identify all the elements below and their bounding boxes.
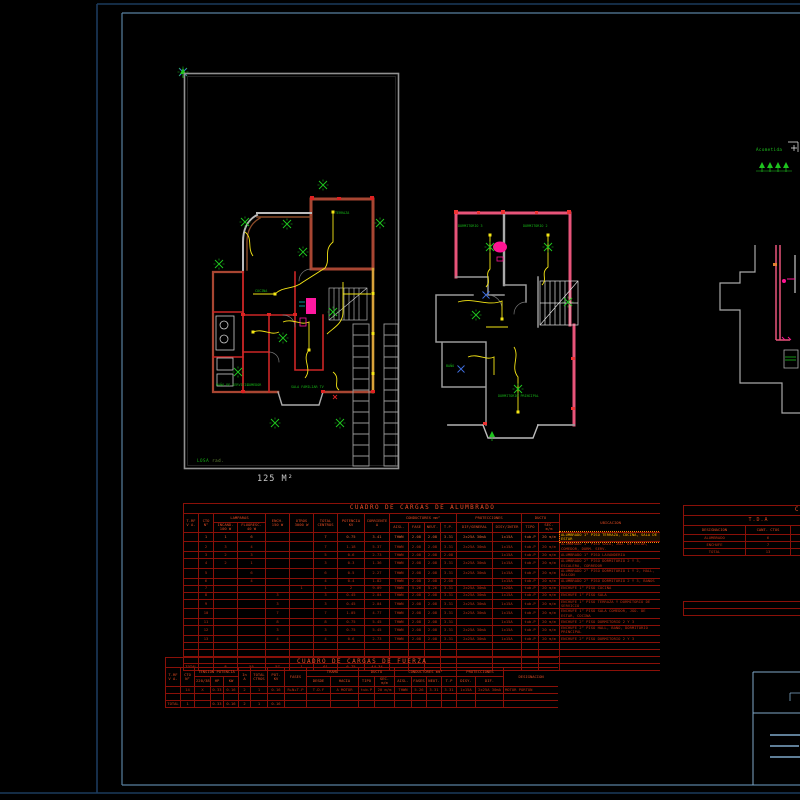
table-cell: [290, 635, 314, 642]
table-cell: [290, 559, 314, 569]
area-label: 125 M²: [257, 474, 294, 484]
table-cell: [290, 578, 314, 585]
table-cell: X: [195, 686, 211, 693]
table-cell: [290, 599, 314, 609]
table-cell: 6: [746, 535, 791, 542]
table-cell: [560, 656, 661, 663]
table-header-cell: T.RF V A.: [166, 668, 181, 687]
table-cell: ENCHUFE 1° PISO SALA: [560, 592, 661, 599]
table-cell: 1.36: [365, 559, 390, 569]
table-cell: [266, 578, 290, 585]
table-cell: 2.08: [409, 542, 425, 552]
table-cell: 5.26: [409, 585, 425, 592]
table-cell: [457, 642, 493, 649]
table-cell: 1x15A: [493, 626, 522, 636]
table-cell: 1: [199, 532, 214, 542]
table-cell: [504, 693, 559, 700]
table-cell: [395, 693, 412, 700]
table-cell: [560, 649, 661, 656]
table-header-cell: T.RF V A.: [184, 514, 199, 533]
table-header-cell: PROTECCIONES: [457, 514, 522, 523]
table-cell: 20 m/m: [539, 635, 560, 642]
header-row: CUADRO: [684, 506, 800, 516]
table-cell: tub.P: [522, 599, 539, 609]
table-cell: 13: [199, 635, 214, 642]
table-cell: 0.5: [338, 568, 365, 578]
table-cell: [290, 542, 314, 552]
table-cell: 1: [290, 585, 314, 592]
table-row: 6440.41.82THWN2.082.082.081x15Atub.P20 m…: [184, 578, 661, 585]
table-cell: 8: [314, 619, 338, 626]
table-header-cell: DUCTO: [522, 514, 560, 523]
room-label-bano-servicio: BAÑO DE SERVICIO: [216, 382, 249, 387]
table-cell: 2x25A 30mA: [457, 635, 493, 642]
table-cell: MOTOR PORTON: [504, 686, 559, 693]
table-cell: 0.16: [268, 686, 285, 693]
table-cell: 1x15A: [493, 592, 522, 599]
room-label-bano: BAÑO: [446, 363, 454, 368]
table-row: 10771.054.77THWN2.082.083.312x25A 30mA1x…: [184, 609, 661, 619]
table-cell: 2x25A 30mA: [476, 686, 504, 693]
table-header-cell: KW: [224, 677, 239, 687]
table-cell: [238, 585, 266, 592]
header-row: T.D.A: [684, 516, 800, 526]
table-row: 32350.62.73THWN2.082.082.081x15Atub.P20 …: [184, 552, 661, 559]
table-cell: 0.16: [224, 686, 239, 693]
table-cell: [457, 619, 493, 626]
table-cell: [266, 649, 290, 656]
table-cell: [195, 700, 211, 707]
table-cell: THWN: [390, 578, 409, 585]
table-cell: [425, 642, 441, 649]
table-cell: ENCHUFE 2° PISO HALL, BAÑO, DORMITORIO P…: [560, 626, 661, 636]
table-cell: THWN: [390, 532, 409, 542]
table-cell: 2.73: [365, 552, 390, 559]
table-cell: 2.08: [409, 592, 425, 599]
table-cell: 3: [314, 592, 338, 599]
table-header-cell: NEUT.: [427, 677, 442, 687]
room-label-dorm2: DORMITORIO 2: [523, 224, 548, 228]
table-row: 11880.755.45THWN2.082.083.311x15Atub.P20…: [184, 619, 661, 626]
cad-drawing-canvas: TERRAZA COCINA BAÑO DE SERVICIO COMEDOR …: [0, 0, 800, 800]
table-cell: [211, 693, 224, 700]
table-header-cell: DISY/INTER: [493, 523, 522, 533]
table-header-cell: SEC. m/m: [375, 677, 395, 687]
table-cell: [290, 532, 314, 542]
table-row: 12330.755.45THWN2.082.083.312x25A 30mA1x…: [184, 626, 661, 636]
table-cell: 20 m/m: [539, 619, 560, 626]
table-header-cell: CUADRO DE CARGAS DE FUERZA: [166, 658, 559, 668]
table-cell: [395, 700, 412, 707]
table-cell: [214, 635, 238, 642]
losa-note: LOSA rad.: [197, 458, 224, 463]
table-cell: [539, 649, 560, 656]
table-cell: 1: [238, 559, 266, 569]
table: [683, 601, 800, 616]
table-cell: ENCHUFE: [684, 542, 746, 549]
table-cell: tub.P: [522, 542, 539, 552]
table-cell: ALUMBRADO 2° PISO DORMITORIO 1 Y 2, HALL…: [560, 568, 661, 578]
table-cell: 2: [199, 542, 214, 552]
table-cell: 2.08: [425, 635, 441, 642]
table-cell: 2x25A 30mA: [457, 609, 493, 619]
table-cell: 2: [214, 559, 238, 569]
table-cell: 2: [239, 700, 251, 707]
table-cell: THWN: [390, 592, 409, 599]
table-cell: ENCHUFE 2° PISO DORMITORIO 2 Y 3: [560, 635, 661, 642]
table-cell: [184, 642, 199, 649]
table-cell: [493, 649, 522, 656]
table-cell: [427, 693, 442, 700]
table-cell: [184, 599, 199, 609]
table-cell: 0.3: [338, 559, 365, 569]
table-header-cell: T.P: [442, 677, 457, 687]
table-header-cell: HP: [211, 677, 224, 687]
table-header-cell: FASE: [409, 523, 425, 533]
table-cell: 2.08: [441, 552, 457, 559]
table-header-cell: T.D.A: [684, 516, 800, 526]
table-cell: 5.37: [365, 542, 390, 552]
table-cell: 7: [314, 542, 338, 552]
empty-row: [184, 649, 661, 656]
table-cell: 6: [238, 568, 266, 578]
table-cell: [268, 693, 285, 700]
table-cell: 3: [266, 626, 290, 636]
room-label-sala-tv: SALA FAMILIAR TV: [291, 385, 324, 389]
table-header-cell: CUADRO DE CARGAS DE ALUMBRADO: [184, 504, 661, 514]
table-cell: 5: [314, 552, 338, 559]
table-cell: [184, 568, 199, 578]
table-cell: 11: [199, 619, 214, 626]
table-cell: 2.08: [409, 599, 425, 609]
table-cell: 3.31: [441, 626, 457, 636]
table-cell: THWN: [390, 619, 409, 626]
walls: [776, 245, 798, 368]
table-cell: 3: [214, 542, 238, 552]
table-cell: 3.41: [365, 532, 390, 542]
table-cell: tub.P: [522, 552, 539, 559]
table-cell: [375, 693, 395, 700]
table-header-cell: TRAMO: [307, 668, 359, 677]
table-cell: [791, 535, 800, 542]
table-cell: [266, 642, 290, 649]
table-header-cell: TIPO: [359, 677, 375, 687]
table-header-cell: CANT. CTOS: [746, 526, 791, 535]
table-header-cell: FLUORESC. 40 W: [238, 523, 266, 533]
roof-outline: [720, 245, 800, 413]
table-header-cell: TIPO: [522, 523, 539, 533]
table-cell: 1x15A: [493, 635, 522, 642]
table: CUADRO DE CARGAS DE FUERZAT.RF V A.CTO N…: [165, 657, 558, 708]
table-cell: 0.75: [338, 619, 365, 626]
table-cell: 20 m/m: [539, 592, 560, 599]
table-cell: [184, 578, 199, 585]
table-cell: 1: [314, 585, 338, 592]
room-label-dorm3: DORMITORIO 3: [458, 224, 483, 228]
table-cell: [266, 552, 290, 559]
table-cell: [290, 552, 314, 559]
table-cell: [214, 609, 238, 619]
table-cell: [214, 585, 238, 592]
table-cell: [365, 642, 390, 649]
table-cell: [238, 635, 266, 642]
table-cell: 6: [314, 568, 338, 578]
table-cell: 0.45: [338, 599, 365, 609]
empty-row: [166, 693, 559, 700]
table-cell: 2.08: [409, 559, 425, 569]
table-cell: 2x25A 30mA: [457, 599, 493, 609]
table-cell: [375, 700, 395, 707]
table-cell: 3: [314, 626, 338, 636]
table-header-cell: CONDUCTORES mm²: [395, 668, 457, 677]
table-cell: 2.08: [425, 578, 441, 585]
table-cell: 3: [238, 552, 266, 559]
table-cell: [184, 649, 199, 656]
table-header-cell: T.P.: [441, 523, 457, 533]
table-header-cell: ENCH. 150 W: [266, 514, 290, 533]
table-cell: 2.08: [409, 635, 425, 642]
table-cell: [214, 592, 238, 599]
table-cell: 3.31: [441, 599, 457, 609]
table-cell: 3: [199, 552, 214, 559]
table-cell: [522, 642, 539, 649]
table-cell: 1: [251, 686, 268, 693]
table-cell: 0.16: [268, 700, 285, 707]
table-cell: [314, 642, 338, 649]
vegetation-icons: [756, 162, 792, 172]
table-row: 14X0.330.16210.16R+N+T.PT.D.FA MOTORtub.…: [166, 686, 559, 693]
table-cell: THWN: [390, 609, 409, 619]
table-cell: 20 m/m: [375, 686, 395, 693]
table-cell: [266, 585, 290, 592]
table-cell: [184, 542, 199, 552]
table-cell: 20 m/m: [539, 568, 560, 578]
table-cell: tub.P: [522, 578, 539, 585]
losa-note-main: LOSA: [197, 458, 209, 463]
table-row: ENCHUFE7: [684, 542, 800, 549]
table-cell: 5: [199, 568, 214, 578]
header-row: 220/380HPKWDESDEHACIATIPOSEC. m/mAISL.FA…: [166, 677, 559, 687]
table-cell: 2x25A 30mA: [457, 559, 493, 569]
table-header-cell: POTENCIA KV: [338, 514, 365, 533]
table-cell: THWN: [390, 542, 409, 552]
table-cell: [390, 649, 409, 656]
table-cell: 2.08: [425, 626, 441, 636]
table-cell: 1x15A: [493, 609, 522, 619]
table-cell: [457, 649, 493, 656]
table-cell: [412, 700, 427, 707]
table-header-cell: DIF.: [476, 677, 504, 687]
table-cell: [457, 578, 493, 585]
table-cell: [184, 592, 199, 599]
table-cell: [307, 693, 331, 700]
table-cell: 7: [266, 609, 290, 619]
table-cell: 2.08: [425, 559, 441, 569]
table-cell: 8: [199, 592, 214, 599]
table-cell: 0.75: [338, 626, 365, 636]
table-header-cell: TENSION POTENCIA: [195, 668, 239, 677]
table-cell: 3.31: [441, 532, 457, 542]
acometida-symbols: [750, 140, 800, 175]
table-cell: TOTAL: [684, 549, 746, 556]
tda-extra-rows: [683, 601, 800, 616]
room-label-cocina: COCINA: [255, 289, 267, 293]
table-header-cell: OTROS 3000 W: [290, 514, 314, 533]
table-cell: 2.08: [425, 592, 441, 599]
table-cell: [238, 592, 266, 599]
table-cell: 20 m/m: [539, 552, 560, 559]
table-cell: ENCHUFE 1° PISO COCINA: [560, 585, 661, 592]
table-cell: 2.08: [425, 609, 441, 619]
table-cell: tub.P: [522, 585, 539, 592]
table-cell: 20 m/m: [539, 599, 560, 609]
table-cell: 7: [314, 532, 338, 542]
interior-stair: [329, 288, 367, 320]
table-cell: 13: [746, 549, 791, 556]
table-cell: 4: [314, 578, 338, 585]
table-cell: [285, 700, 307, 707]
table-header-cell: CTO N°: [181, 668, 195, 687]
table-cell: 0.6: [338, 635, 365, 642]
table-cell: ALUMBRADO 2° PISO DORMITORIO 2 Y 3, ESCA…: [560, 559, 661, 569]
table-cell: [307, 700, 331, 707]
table-cell: 3.31: [441, 635, 457, 642]
table-header-cell: DUCTO: [359, 668, 395, 677]
table-cell: [266, 559, 290, 569]
table-cell: 20 m/m: [539, 585, 560, 592]
table-cell: [184, 585, 199, 592]
table-cell: [365, 649, 390, 656]
table-cell: [684, 602, 800, 609]
table-cell: 7: [314, 609, 338, 619]
table-cell: 1x15A: [493, 532, 522, 542]
table-cell: 3.31: [442, 686, 457, 693]
table-cell: 1: [214, 532, 238, 542]
kitchen-fixtures: [216, 316, 234, 386]
table-cell: [199, 649, 214, 656]
table-cell: 4: [314, 635, 338, 642]
table-cell: [181, 693, 195, 700]
table-row: TOTAL13: [684, 549, 800, 556]
table-cell: [504, 700, 559, 707]
room-label-comedor: COMEDOR: [247, 383, 262, 387]
table-cell: 3.31: [441, 568, 457, 578]
table-cell: [560, 642, 661, 649]
table-cell: [338, 642, 365, 649]
table-cell: [224, 693, 239, 700]
empty-row: [184, 642, 661, 649]
table-cell: 0.75: [338, 532, 365, 542]
table-header-cell: FASES: [412, 677, 427, 687]
table-cell: 9: [199, 599, 214, 609]
stairs: [540, 281, 578, 325]
table-row: [684, 609, 800, 616]
table-cell: 2.08: [441, 578, 457, 585]
table-cell: [238, 609, 266, 619]
header-row: DESIGNACIONCANT. CTOSPOTENCIA: [684, 526, 800, 535]
floor-plan-1: TERRAZA COCINA BAÑO DE SERVICIO COMEDOR …: [183, 72, 400, 470]
table-cell: 0.45: [338, 592, 365, 599]
table-cell: [184, 609, 199, 619]
total-row: TOTAL10.330.16210.16: [166, 700, 559, 707]
table-header-cell: DESIGNACION: [504, 668, 559, 687]
table-cell: [214, 599, 238, 609]
table-cell: [184, 626, 199, 636]
table-cell: 1x15A: [493, 552, 522, 559]
table-cell: [251, 693, 268, 700]
table-cell: 2.08: [409, 619, 425, 626]
table-cell: tub.P: [522, 626, 539, 636]
table-header-cell: DESIGNACION: [684, 526, 746, 535]
table-cell: THWN: [390, 585, 409, 592]
table-cell: [214, 642, 238, 649]
table-cell: ALUMBRADO 2° PISO DORMITORIO 2 Y 3, BAÑO…: [560, 578, 661, 585]
green-marks: [785, 357, 796, 360]
table-cell: 8: [266, 619, 290, 626]
table-cell: 3.31: [441, 542, 457, 552]
table-cell: ENCHUFE 1° PISO TERRAZA Y DORMITORIO DE …: [560, 599, 661, 609]
table-cell: [290, 649, 314, 656]
table-header-cell: DESDE: [307, 677, 331, 687]
table-cell: 14: [181, 686, 195, 693]
table-cell: [238, 626, 266, 636]
table-cell: 2.08: [425, 568, 441, 578]
table-header-cell: CTO N°: [199, 514, 214, 533]
table-cell: 5.26: [412, 686, 427, 693]
table-cell: 1x15A: [493, 578, 522, 585]
alumbrado-loads-table: CUADRO DE CARGAS DE ALUMBRADOT.RF V A.CT…: [183, 503, 660, 671]
table-cell: tub.P: [522, 635, 539, 642]
table-cell: [331, 693, 359, 700]
table-cell: 2.08: [409, 578, 425, 585]
table-cell: 6: [199, 578, 214, 585]
table-cell: 3.31: [441, 592, 457, 599]
losa-note-dim: rad.: [212, 458, 224, 463]
table-cell: tub.P: [522, 532, 539, 542]
table-header-cell: CONDUCTORES mm²: [390, 514, 457, 523]
table-cell: [184, 552, 199, 559]
table-cell: 20 m/m: [539, 609, 560, 619]
table-cell: [441, 642, 457, 649]
table-cell: [290, 619, 314, 626]
table-cell: [214, 619, 238, 626]
header-row: CUADRO DE CARGAS DE FUERZA: [166, 658, 559, 668]
header-row: T.RF V A.CTO N°LAMPARASENCH. 150 WOTROS …: [184, 514, 661, 523]
table-cell: 0.33: [211, 700, 224, 707]
table-cell: ALUMBRADO: [684, 535, 746, 542]
table-cell: [493, 642, 522, 649]
table-cell: 7: [746, 542, 791, 549]
table-cell: [331, 700, 359, 707]
table-header-cell: AISL.: [395, 677, 412, 687]
table-header-cell: DIF/GENERAL: [457, 523, 493, 533]
table-row: 8330.452.04THWN2.082.083.312x25A 30mA1x1…: [184, 592, 661, 599]
table-cell: [684, 609, 800, 616]
header-row: T.RF V A.CTO N°TENSION POTENCIAIn ATOTAL…: [166, 668, 559, 677]
table-cell: 4.77: [365, 609, 390, 619]
table-cell: [195, 693, 211, 700]
table-cell: [791, 542, 800, 549]
table-header-cell: POT. KV: [268, 668, 285, 687]
table-cell: 2.27: [365, 568, 390, 578]
table-header-cell: TOTAL CENTROS: [314, 514, 338, 533]
table-cell: 3: [314, 559, 338, 569]
table-header-cell: In A: [239, 668, 251, 687]
table-cell: [166, 693, 181, 700]
table-cell: [290, 609, 314, 619]
table-cell: 2x25A 30mA: [457, 626, 493, 636]
table-cell: 4: [238, 542, 266, 552]
